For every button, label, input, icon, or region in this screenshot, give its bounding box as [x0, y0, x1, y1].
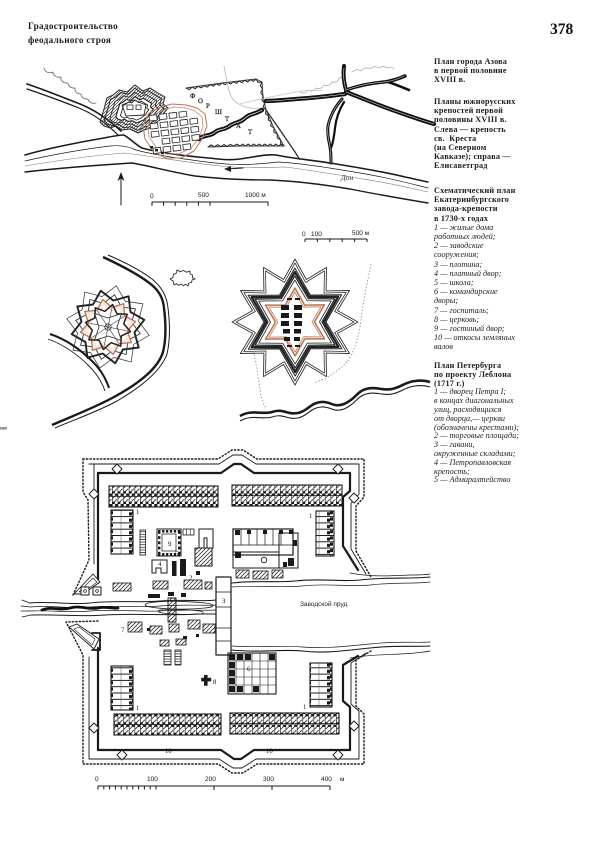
svg-text:6: 6 — [247, 666, 251, 673]
svg-text:Дон: Дон — [340, 173, 354, 182]
svg-text:м: м — [340, 776, 345, 783]
svg-text:200: 200 — [205, 776, 216, 783]
svg-text:100: 100 — [311, 231, 322, 238]
svg-text:0: 0 — [95, 776, 99, 783]
svg-text:1000 м: 1000 м — [245, 192, 266, 199]
svg-text:7: 7 — [121, 627, 125, 634]
svg-text:100: 100 — [147, 776, 158, 783]
svg-text:1: 1 — [136, 509, 139, 516]
svg-text:8: 8 — [213, 679, 217, 686]
svg-text:5: 5 — [175, 551, 179, 558]
svg-text:300: 300 — [263, 776, 274, 783]
svg-text:400: 400 — [321, 776, 332, 783]
svg-text:10: 10 — [165, 748, 172, 755]
svg-text:0: 0 — [150, 193, 154, 200]
svg-text:500: 500 — [198, 192, 209, 199]
svg-text:1: 1 — [309, 513, 312, 520]
svg-text:Т: Т — [248, 129, 253, 136]
svg-text:500 м: 500 м — [352, 230, 370, 237]
svg-text:0: 0 — [302, 231, 306, 238]
svg-text:1: 1 — [303, 704, 306, 711]
svg-text:1: 1 — [136, 705, 139, 712]
svg-text:4: 4 — [158, 561, 162, 568]
svg-text:О: О — [198, 98, 203, 105]
svg-text:Ф: Ф — [190, 93, 196, 100]
svg-text:Заводской пруд: Заводской пруд — [300, 601, 348, 608]
svg-text:2: 2 — [189, 575, 193, 582]
svg-text:Т: Т — [225, 116, 230, 123]
svg-text:9: 9 — [168, 541, 172, 548]
svg-text:10: 10 — [266, 748, 273, 755]
svg-text:Р: Р — [206, 103, 210, 110]
svg-text:Ш: Ш — [215, 109, 222, 116]
svg-text:А: А — [236, 123, 241, 130]
svg-text:3: 3 — [222, 598, 226, 605]
